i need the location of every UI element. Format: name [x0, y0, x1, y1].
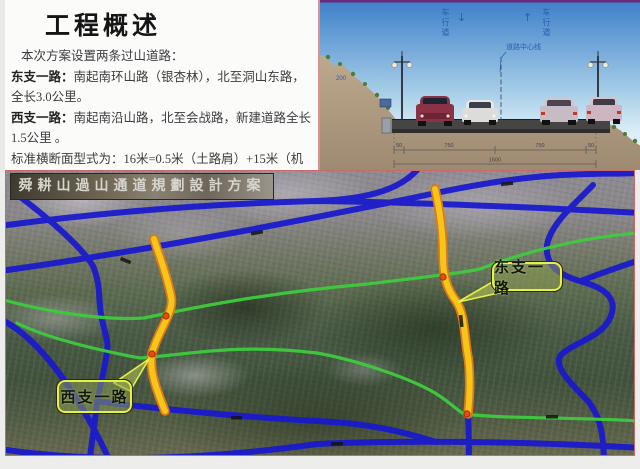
callout-west-road: 西支一路: [57, 380, 132, 413]
existing-road-south-connector: [468, 414, 469, 455]
road-label-marks: [120, 181, 558, 445]
existing-road-west-vertical: [15, 193, 108, 455]
centerline-label: 道路中心线: [506, 44, 541, 51]
west-road-label: 西支一路：: [11, 111, 74, 125]
junction-dot: [149, 351, 155, 357]
east-road-paragraph: 东支一路：南起南环山路（银杏林），北至洞山东路，全长3.0公里。: [11, 67, 312, 107]
direction-arrow-down-icon: ↓: [457, 12, 466, 23]
intro-text: 本次方案设置两条过山道路：: [11, 46, 312, 66]
cross-section-figure: 200 50 750 750 50 1600: [320, 0, 640, 170]
car-sedan-front: [462, 100, 498, 125]
map-banner-title: 舜耕山過山通道規劃設計方案: [10, 173, 274, 200]
overview-panel: 工程概述 本次方案设置两条过山道路： 东支一路：南起南环山路（银杏林），北至洞山…: [0, 0, 318, 170]
slope-elevation-label: 200: [336, 76, 347, 82]
junction-dot: [464, 411, 470, 417]
road-base: [392, 129, 610, 133]
page-title: 工程概述: [45, 6, 312, 42]
dim-shoulder-left: 50: [396, 143, 402, 149]
cross-section-panel: 200 50 750 750 50 1600 车行道 ↓ ↑ 车行道 道路中心线: [318, 0, 640, 170]
car-sedan-rear-2: [586, 97, 622, 124]
junction-dot: [163, 313, 169, 319]
slide-root: { "overview": { "title": "工程概述", "intro"…: [0, 0, 640, 469]
car-sedan-rear-1: [540, 98, 578, 125]
top-border: [320, 0, 640, 3]
planned-road-casings: [151, 189, 469, 414]
culvert: [382, 118, 391, 133]
map-panel: 舜耕山過山通道規劃設計方案 东支一路 西支一路: [5, 170, 635, 456]
lane-label-right: 车行道: [542, 8, 550, 38]
dim-shoulder-right: 50: [588, 143, 594, 149]
dim-lane-left: 750: [444, 143, 453, 149]
planned-roads: [151, 189, 469, 414]
lane-label-left: 车行道: [441, 8, 449, 38]
junction-dot: [440, 274, 446, 280]
dim-total: 1600: [489, 158, 501, 164]
existing-road-east-curve: [547, 185, 634, 455]
roadside-sign: [380, 99, 391, 107]
bottom-margin: [0, 456, 640, 469]
east-road-label: 东支一路：: [11, 70, 74, 84]
callout-east-road: 东支一路: [492, 262, 562, 291]
dim-lane-right: 750: [535, 143, 544, 149]
car-suv-front: [416, 96, 454, 126]
direction-arrow-up-icon: ↑: [523, 12, 532, 23]
west-road-paragraph: 西支一路：南起南沿山路，北至会战路，新建道路全长1.5公里 。: [11, 108, 312, 148]
existing-road-south-upper: [97, 401, 436, 442]
junction-dots: [149, 274, 470, 417]
